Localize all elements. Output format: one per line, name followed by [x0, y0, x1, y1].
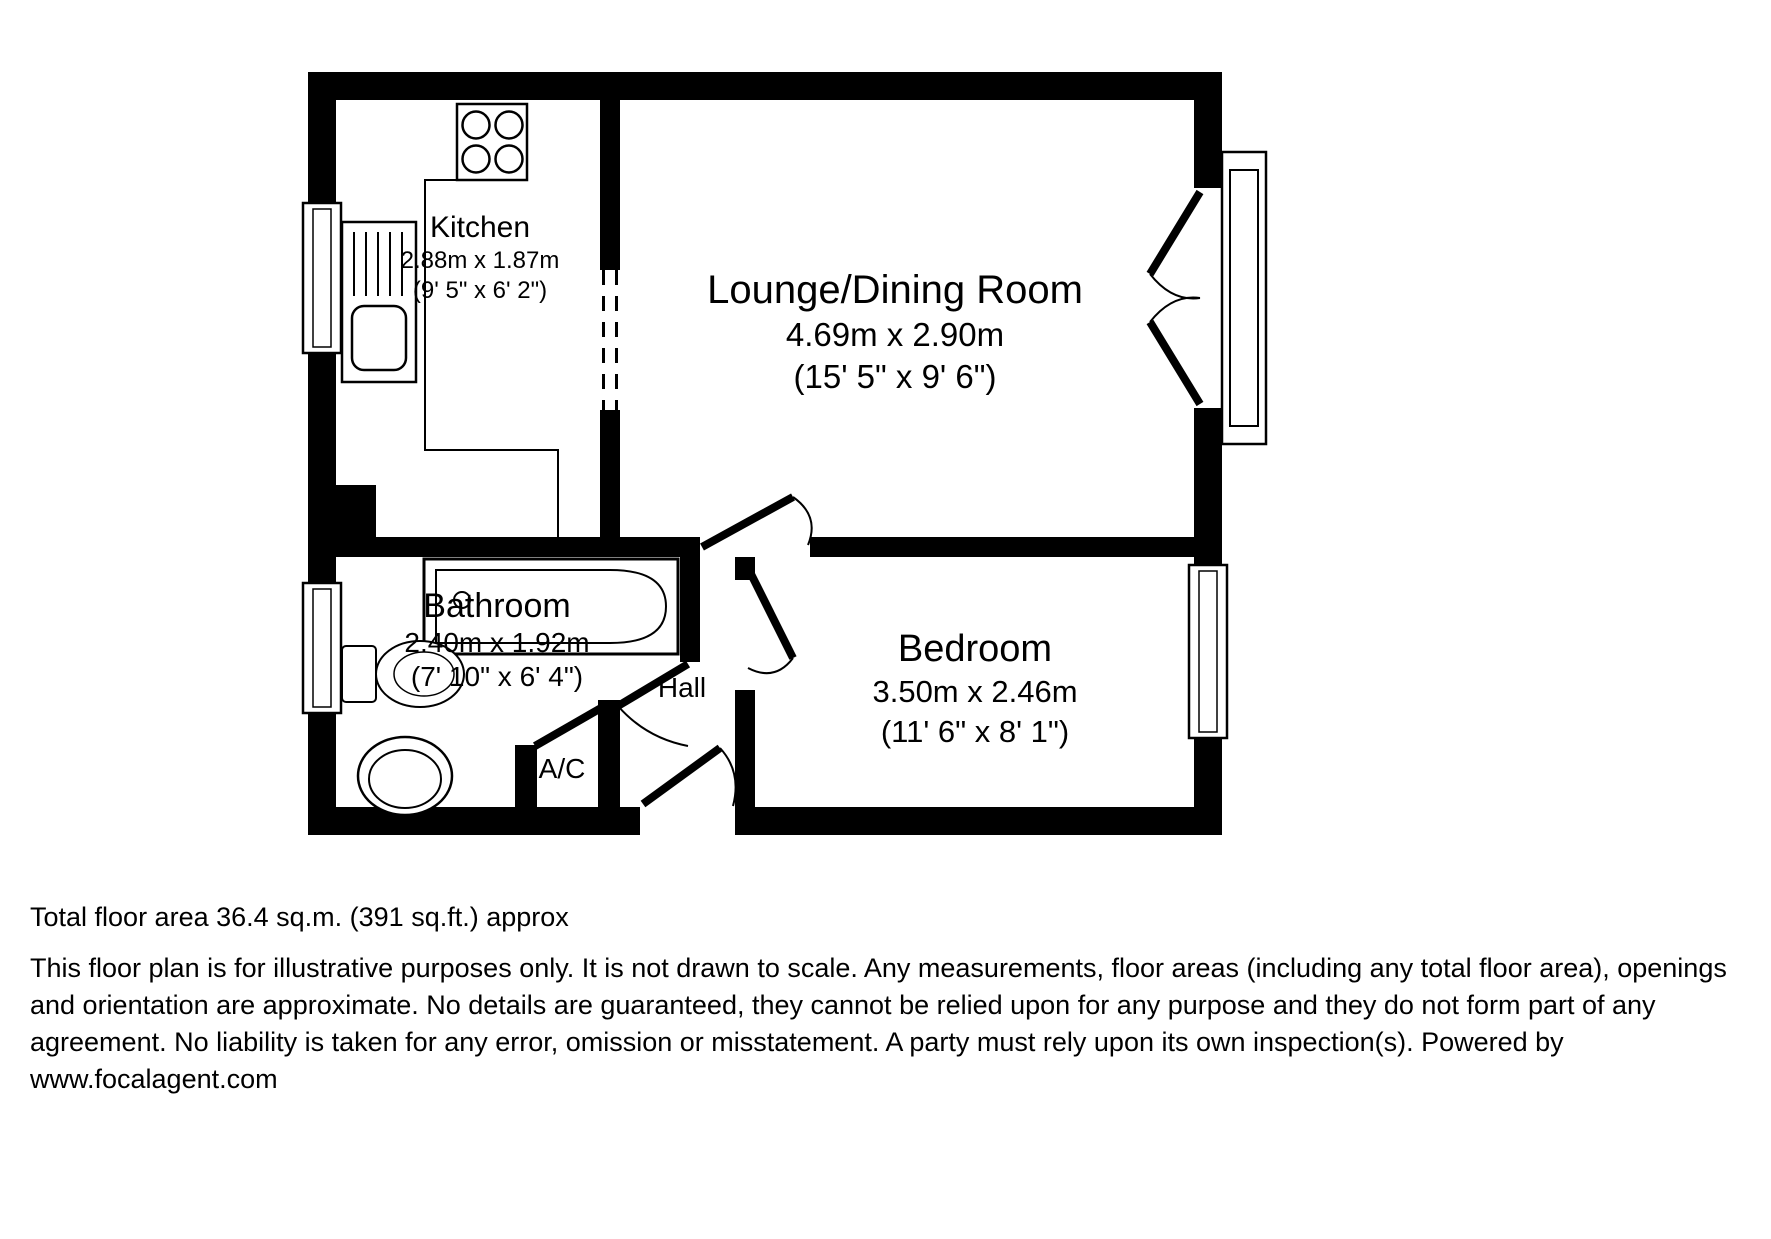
kitchen-fixtures [342, 104, 558, 537]
kitchen-opening-dashed [604, 270, 617, 410]
wall-right-middle [1194, 408, 1222, 565]
hall-label: Hall [658, 672, 706, 704]
lounge-metric: 4.69m x 2.90m [707, 314, 1083, 356]
french-door-leaf-upper [1150, 192, 1200, 274]
bedroom-name: Bedroom [872, 626, 1077, 672]
wall-kitchen-divider-lower [600, 410, 620, 543]
bedroom-window-icon [1189, 565, 1227, 738]
wall-bedroom-top [810, 537, 1194, 557]
bedroom-label: Bedroom 3.50m x 2.46m (11' 6" x 8' 1") [872, 626, 1077, 752]
wall-bottom-right [735, 807, 1222, 835]
french-door-leaf-lower [1150, 322, 1200, 404]
wall-bottom-left [308, 807, 640, 835]
wall-ac-left-post [515, 745, 537, 807]
wall-bathroom-corner-block [336, 485, 376, 557]
wall-bathroom-right-post [680, 557, 700, 662]
lounge-imperial: (15' 5" x 9' 6") [707, 356, 1083, 398]
wall-bedroom-left-lower [735, 690, 755, 807]
bathroom-imperial: (7' 10" x 6' 4") [404, 660, 589, 694]
french-door-arc-lower [1150, 298, 1200, 323]
french-door-arc-upper [1150, 274, 1200, 299]
lounge-door-icon [702, 497, 812, 547]
kitchen-imperial: (9' 5" x 6' 2") [401, 276, 560, 306]
total-floor-area: Total floor area 36.4 sq.m. (391 sq.ft.)… [30, 900, 569, 934]
wall-kitchen-divider-upper [600, 100, 620, 270]
wall-left-middle [308, 353, 336, 583]
wall-ac-right [598, 700, 620, 807]
wall-left-upper [308, 100, 336, 203]
bedroom-metric: 3.50m x 2.46m [872, 672, 1077, 712]
wall-bathroom-top [336, 537, 700, 557]
basin-icon [358, 737, 452, 815]
kitchen-window-icon [303, 203, 341, 353]
bathroom-label: Bathroom 2.40m x 1.92m (7' 10" x 6' 4") [404, 586, 589, 694]
ac-label: A/C [539, 753, 586, 785]
bedroom-imperial: (11' 6" x 8' 1") [872, 712, 1077, 752]
lounge-name: Lounge/Dining Room [707, 266, 1083, 314]
bathroom-metric: 2.40m x 1.92m [404, 626, 589, 660]
entry-door-icon [643, 748, 736, 806]
bathroom-name: Bathroom [404, 586, 589, 626]
wall-right-upper [1194, 100, 1222, 188]
outer-walls [308, 72, 1222, 835]
patio-door-icon [1150, 152, 1266, 444]
stove-icon [457, 104, 527, 180]
disclaimer-text: This floor plan is for illustrative purp… [30, 950, 1746, 1098]
kitchen-label: Kitchen 2.88m x 1.87m (9' 5" x 6' 2") [401, 210, 560, 306]
bathroom-window-icon [303, 583, 341, 713]
kitchen-metric: 2.88m x 1.87m [401, 246, 560, 276]
wall-top [308, 72, 1222, 100]
lounge-label: Lounge/Dining Room 4.69m x 2.90m (15' 5"… [707, 266, 1083, 398]
bedroom-door-icon [748, 568, 793, 673]
wall-right-lower [1194, 738, 1222, 835]
floorplan-page: Kitchen 2.88m x 1.87m (9' 5" x 6' 2") Lo… [0, 0, 1771, 1239]
kitchen-name: Kitchen [401, 210, 560, 246]
